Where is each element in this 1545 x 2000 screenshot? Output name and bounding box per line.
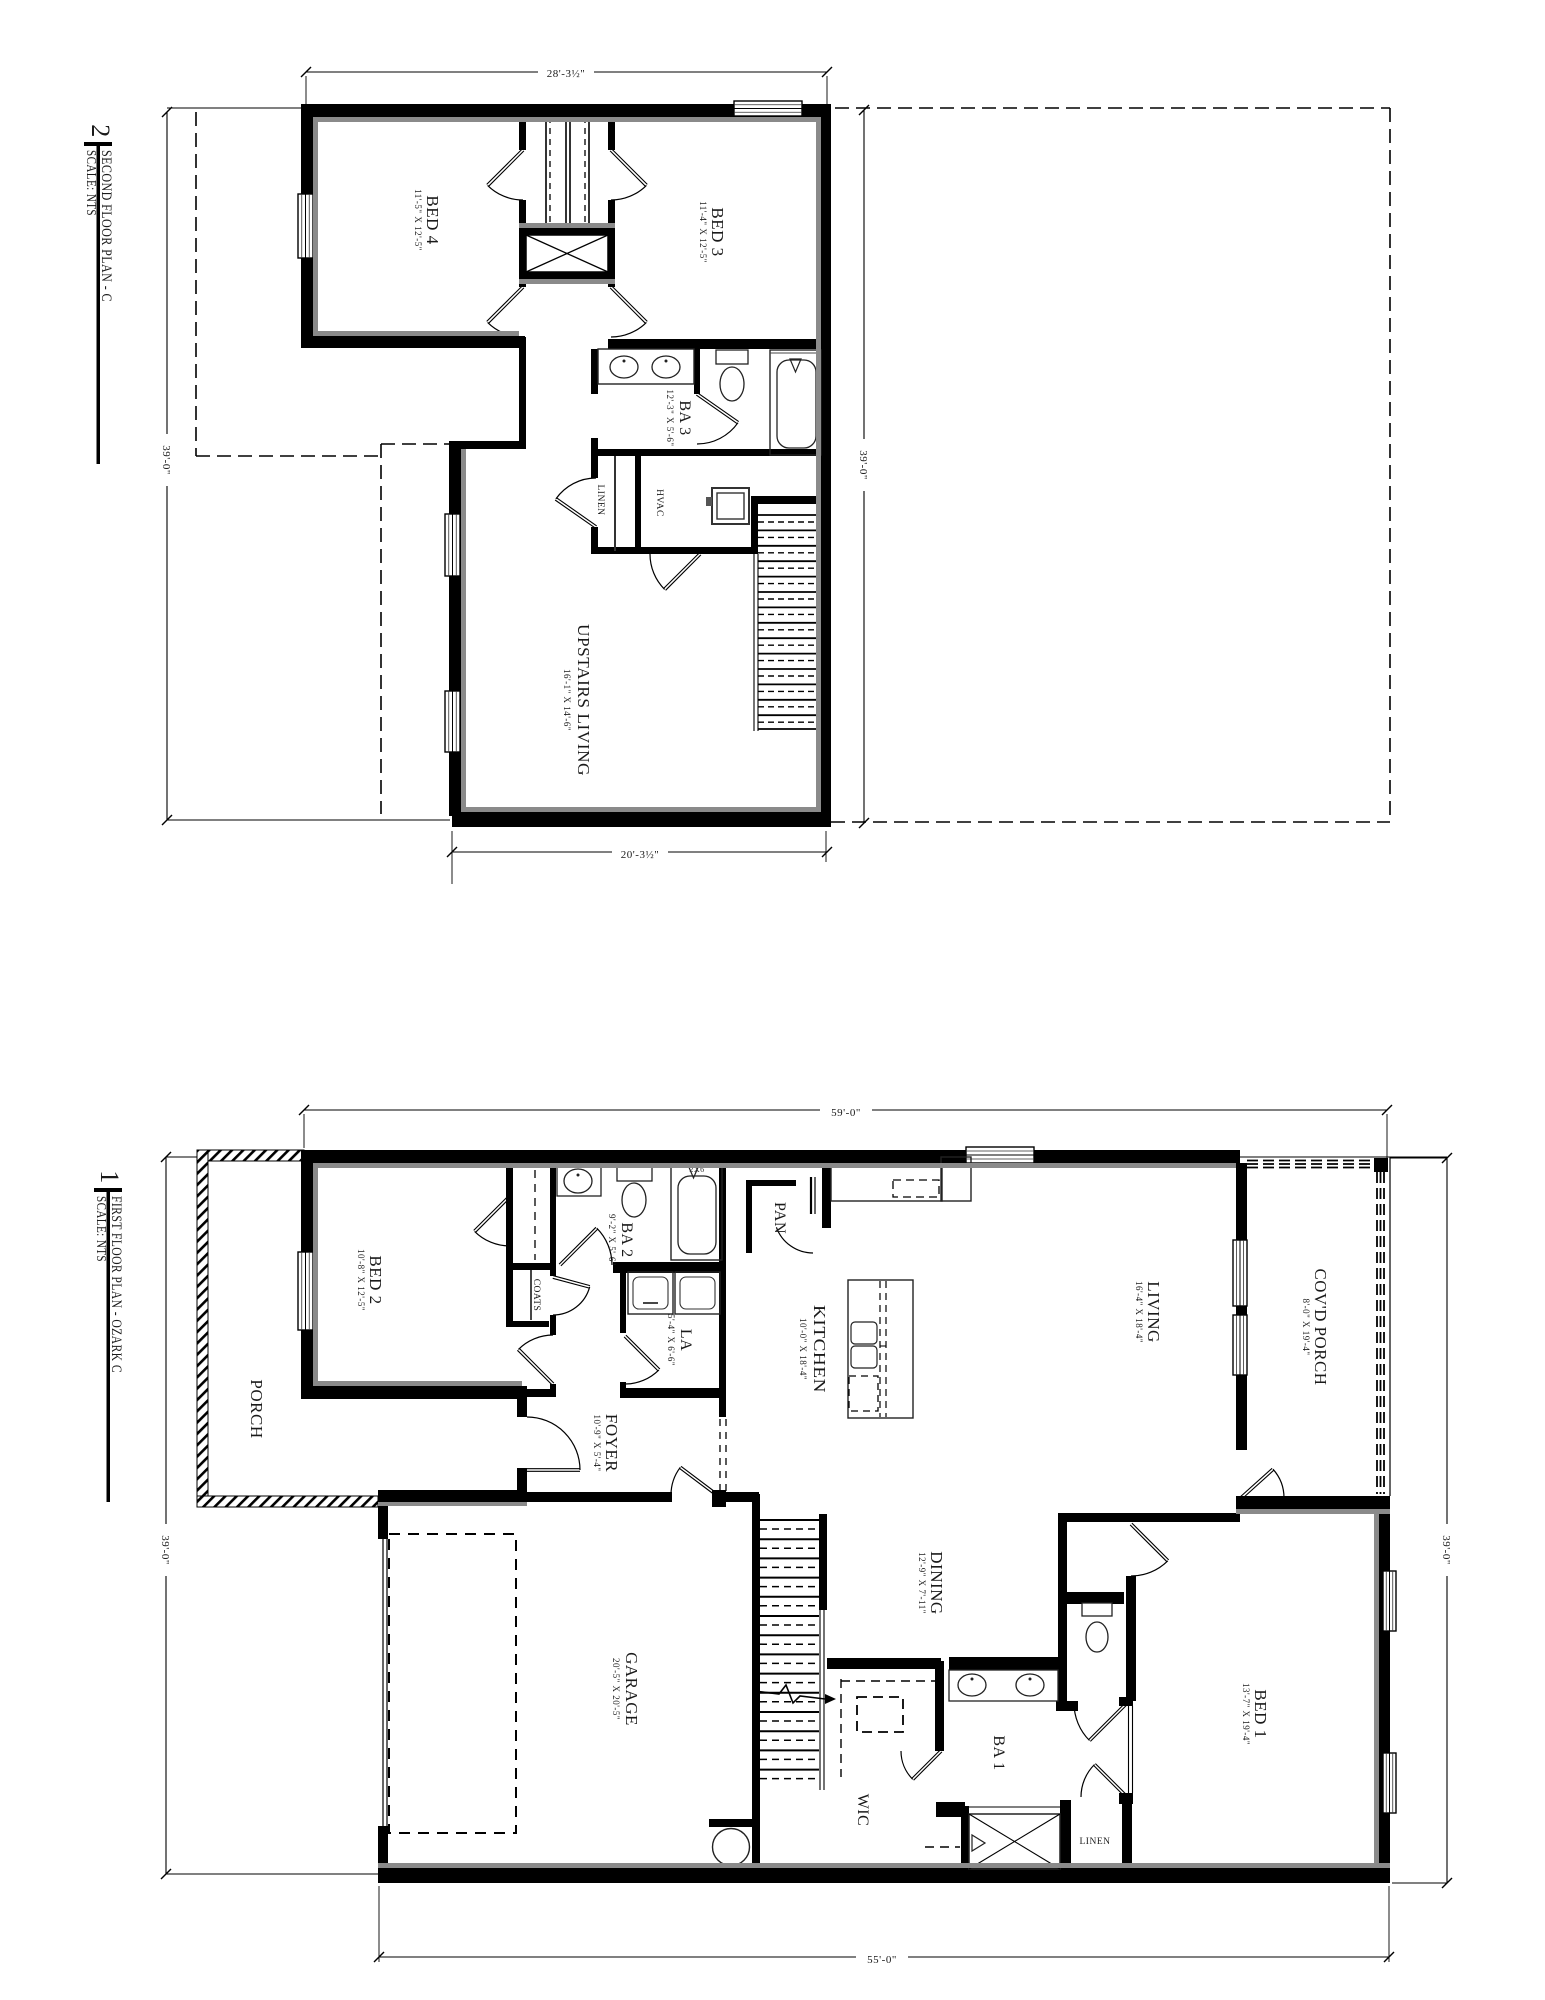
svg-text:13'-7" X 19'-4": 13'-7" X 19'-4" [1241, 1683, 1251, 1745]
svg-text:LINEN: LINEN [595, 485, 605, 516]
svg-text:COV'D PORCH: COV'D PORCH [1311, 1269, 1330, 1386]
svg-text:LIVING: LIVING [1144, 1281, 1163, 1343]
svg-text:GARAGE: GARAGE [622, 1652, 641, 1726]
svg-text:BED 4: BED 4 [423, 195, 442, 244]
svg-text:SECOND FLOOR PLAN - C: SECOND FLOOR PLAN - C [98, 150, 114, 302]
svg-text:WIC: WIC [854, 1794, 871, 1827]
svg-text:1: 1 [95, 1170, 124, 1184]
svg-text:COATS: COATS [531, 1279, 541, 1312]
svg-text:LINEN: LINEN [1080, 1837, 1111, 1847]
svg-text:PAN: PAN [771, 1202, 788, 1234]
svg-text:11'-4" X 12'-5": 11'-4" X 12'-5" [698, 201, 708, 263]
svg-text:20'-3½": 20'-3½" [621, 849, 659, 861]
svg-text:BA 1: BA 1 [990, 1735, 1007, 1770]
svg-text:DINING: DINING [927, 1551, 946, 1614]
svg-text:2: 2 [86, 124, 115, 138]
svg-text:UPSTAIRS LIVING: UPSTAIRS LIVING [574, 624, 593, 776]
svg-text:8'-0" X 19'-4": 8'-0" X 19'-4" [1301, 1298, 1311, 1355]
svg-text:BA 2: BA 2 [618, 1222, 635, 1257]
svg-text:12'-9" X 7'-11": 12'-9" X 7'-11" [917, 1552, 927, 1614]
svg-text:20'-5" X 20'-5": 20'-5" X 20'-5" [611, 1658, 621, 1720]
svg-text:39'-0": 39'-0" [1440, 1535, 1452, 1565]
svg-text:16'-4" X 18'-4": 16'-4" X 18'-4" [1134, 1281, 1144, 1343]
svg-text:BED 2: BED 2 [366, 1255, 385, 1304]
svg-text:11'-5" X 12'-5": 11'-5" X 12'-5" [413, 189, 423, 251]
svg-text:39'-0": 39'-0" [159, 1535, 171, 1565]
svg-text:10'-8" X 12'-5": 10'-8" X 12'-5" [356, 1249, 366, 1311]
svg-text:PORCH: PORCH [247, 1379, 266, 1438]
svg-text:9'-2" X 5'-6": 9'-2" X 5'-6" [607, 1214, 617, 1266]
svg-text:BED 1: BED 1 [1251, 1689, 1270, 1738]
svg-text:FOYER: FOYER [602, 1414, 621, 1472]
svg-text:5'-4" X 6'-6": 5'-4" X 6'-6" [666, 1314, 676, 1366]
svg-text:12'-3" X 5'-6": 12'-3" X 5'-6" [665, 389, 675, 446]
svg-text:BED 3: BED 3 [708, 207, 727, 256]
svg-text:KITCHEN: KITCHEN [810, 1305, 829, 1393]
svg-text:39'-0": 39'-0" [857, 450, 869, 480]
svg-text:BA 3: BA 3 [676, 400, 693, 435]
svg-text:59'-0": 59'-0" [831, 1107, 861, 1119]
svg-text:SCALE: NTS: SCALE: NTS [94, 1196, 109, 1262]
svg-text:28'-3½": 28'-3½" [547, 68, 585, 80]
svg-text:39'-0": 39'-0" [160, 445, 172, 475]
svg-text:LA: LA [677, 1329, 694, 1351]
svg-text:FIRST FLOOR PLAN - OZARK C: FIRST FLOOR PLAN - OZARK C [108, 1196, 124, 1373]
svg-text:SCALE: NTS: SCALE: NTS [84, 150, 99, 216]
svg-text:16'-1" X 14'-6": 16'-1" X 14'-6" [562, 669, 572, 731]
svg-text:HVAC: HVAC [654, 489, 664, 517]
svg-text:55'-0": 55'-0" [867, 1954, 897, 1966]
svg-text:10'-9" X 5'-4": 10'-9" X 5'-4" [592, 1414, 602, 1471]
svg-text:10'-0" X 18'-4": 10'-0" X 18'-4" [798, 1318, 808, 1380]
